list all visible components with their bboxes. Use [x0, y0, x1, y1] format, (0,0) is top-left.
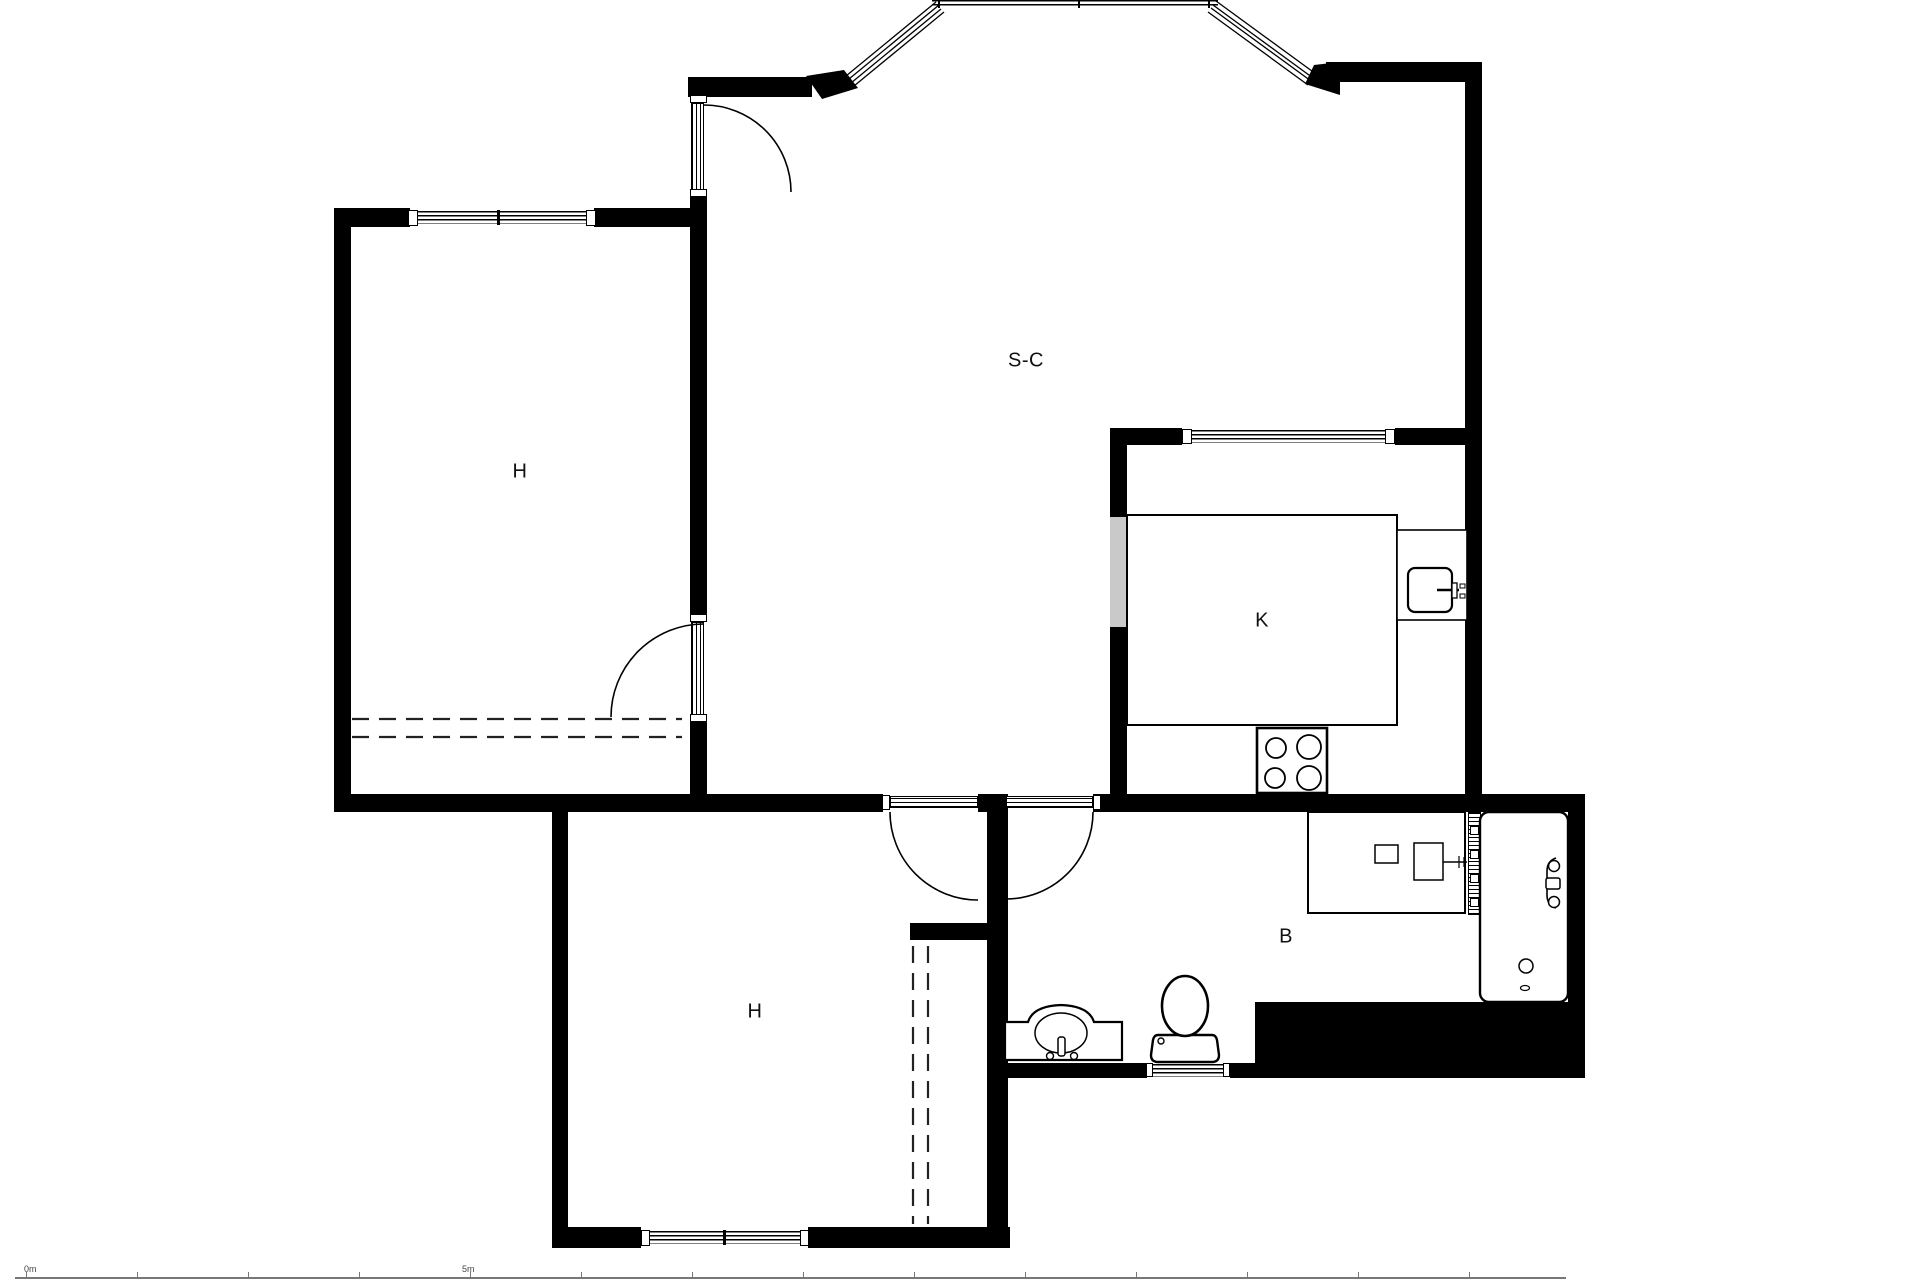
room-label-living: S-C [1008, 350, 1044, 373]
kitchen-sink-icon [1397, 530, 1467, 620]
bathroom-vanity [1308, 812, 1467, 913]
radiator-segment [1470, 850, 1479, 859]
wall-bedroom-lower-bottom-left [552, 1227, 641, 1248]
door-jamb [1093, 795, 1101, 810]
window-jamb [1385, 429, 1395, 444]
window-jamb [408, 210, 418, 226]
wall-bottom-main-right [1093, 794, 1585, 812]
scale-label-end: 5m [462, 1264, 475, 1274]
door-arc-hall-right [1006, 812, 1093, 899]
door-jamb [690, 714, 707, 722]
toilet-icon [1151, 976, 1219, 1062]
room-label-bedroom-upper: H [513, 461, 528, 484]
window-kitchen [1192, 430, 1385, 443]
wall-kitchen-left-lower [1110, 627, 1127, 812]
wall-bathroom-mass [1255, 1002, 1570, 1078]
window-jamb [641, 1230, 650, 1246]
window-jamb [800, 1230, 809, 1246]
bathtub-icon [1480, 812, 1568, 1002]
wall-bedroom-upper-left [334, 208, 351, 812]
room-label-bathroom: B [1279, 926, 1293, 949]
wall-kitchen-top-right [1395, 428, 1465, 445]
wall-bedroom-upper-top-left [334, 208, 410, 227]
window-mullion [497, 210, 500, 225]
window-mullion [1078, 0, 1080, 8]
window-jamb [1146, 1063, 1153, 1077]
bay-window-left-diagonal [846, 2, 944, 86]
wall-living-top-left [688, 77, 812, 97]
door-jamb [690, 95, 707, 103]
floor-plan-canvas: H S-C K H B 0m 5m [0, 0, 1920, 1280]
door-leaf-bedroom-upper [691, 622, 704, 715]
window-mullion [938, 0, 940, 8]
wall-bedroom-lower-bottom-right [808, 1227, 1010, 1248]
door-leaf-entry [691, 103, 704, 190]
wall-bathroom-bottom-left [987, 1063, 1147, 1078]
window-jamb [1182, 429, 1192, 444]
wall-living-top-right [1326, 62, 1482, 82]
bathroom-sink-icon [1005, 1005, 1122, 1060]
wall-bathroom-right [1568, 794, 1585, 1078]
room-label-kitchen: K [1255, 610, 1269, 633]
door-leaf-hall-right [1006, 796, 1093, 808]
door-jamb [690, 614, 707, 622]
wardrobe-dashed-upper [352, 719, 682, 737]
window-bathroom [1153, 1064, 1223, 1077]
opening-kitchen-pass [1110, 517, 1127, 627]
stove-icon [1257, 728, 1327, 793]
bay-window-right-diagonal [1208, 1, 1316, 85]
window-jamb [1223, 1063, 1230, 1077]
wardrobe-dashed-lower [913, 946, 928, 1224]
scale-label-start: 0m [24, 1264, 37, 1274]
wall-closet-stub [910, 923, 987, 940]
wall-wedge-left [806, 70, 858, 99]
wall-bedroom-lower-left [552, 812, 568, 1248]
wall-right-exterior [1465, 62, 1482, 812]
room-label-bedroom-lower: H [748, 1001, 763, 1024]
wall-bottom-main-left [334, 794, 883, 812]
door-arc-hall-left [890, 812, 978, 900]
wall-shared-vertical-upper [690, 195, 707, 617]
fixtures-overlay [0, 0, 1920, 1280]
door-arc-entry [704, 105, 791, 192]
radiator-segment [1470, 874, 1479, 883]
window-bedroom-upper [418, 211, 586, 224]
radiator-segment [1470, 898, 1479, 907]
wall-bedroom-upper-top-right [594, 208, 690, 227]
door-jamb [690, 189, 707, 197]
window-mullion [1208, 0, 1210, 8]
window-mullion [723, 1230, 726, 1245]
wall-bedroom-lower-right [987, 810, 1008, 1248]
radiator-segment [1470, 826, 1479, 835]
wall-kitchen-left-upper [1110, 428, 1127, 517]
scale-bar-line [15, 1277, 1566, 1279]
window-jamb [586, 210, 596, 226]
door-leaf-hall-left [890, 796, 978, 808]
door-jamb [882, 795, 890, 810]
window-bay-top [932, 0, 1218, 6]
